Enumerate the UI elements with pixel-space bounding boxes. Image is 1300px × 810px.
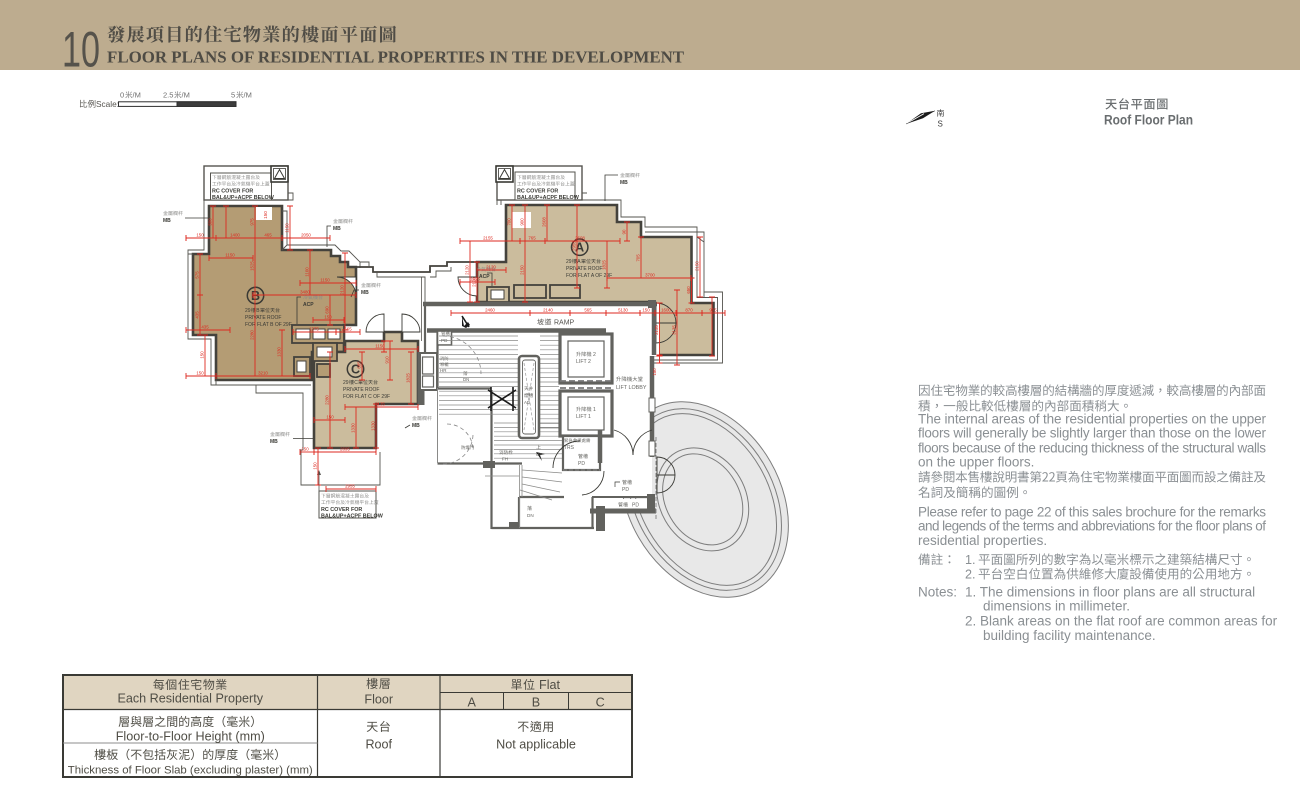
svg-text:Thickness of Floor Slab (exclu: Thickness of Floor Slab (excluding plast…	[68, 765, 313, 777]
svg-text:Roof: Roof	[365, 738, 392, 752]
svg-text:Each Residential Property: Each Residential Property	[117, 692, 263, 706]
svg-text:Flat: Flat	[539, 678, 560, 692]
svg-text:Floor: Floor	[364, 693, 393, 707]
svg-text:Floor-to-Floor Height (mm): Floor-to-Floor Height (mm)	[116, 730, 265, 744]
svg-text:Not applicable: Not applicable	[496, 738, 576, 752]
svg-text:A: A	[467, 696, 476, 710]
svg-text:C: C	[596, 696, 605, 710]
svg-text:B: B	[532, 696, 540, 710]
